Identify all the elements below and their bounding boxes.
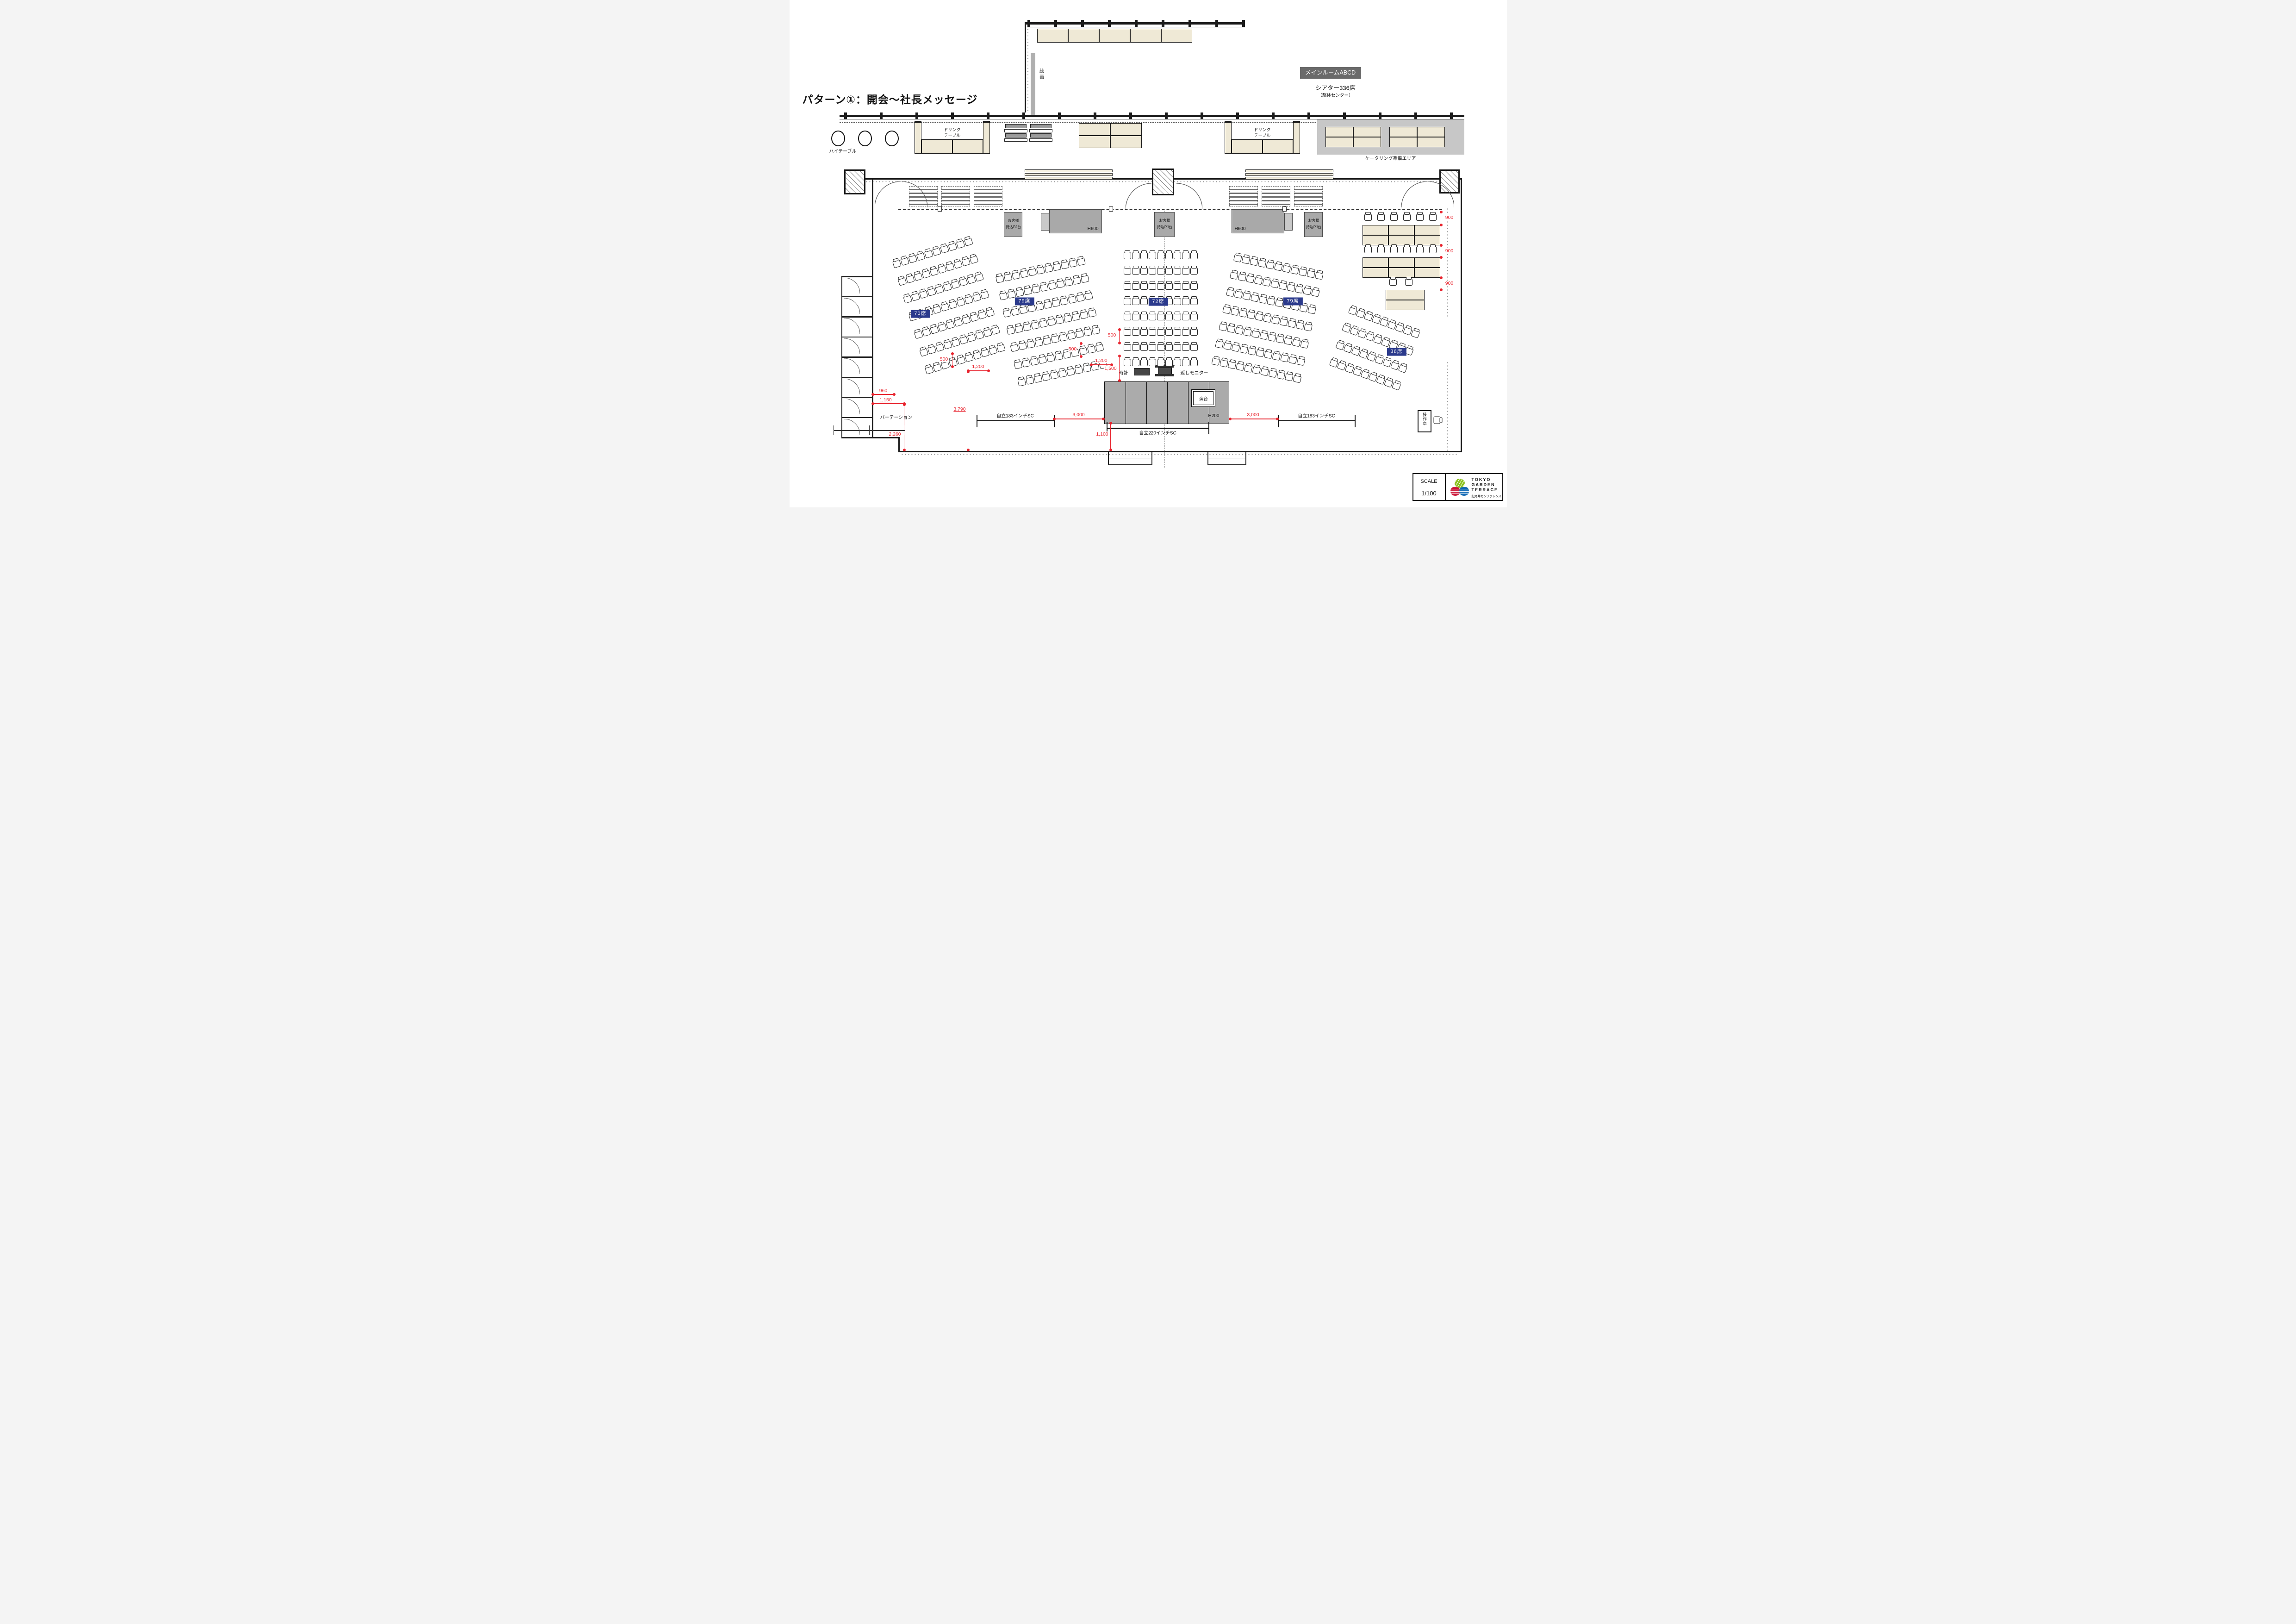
chair xyxy=(935,343,944,352)
rail-clamp-icon xyxy=(1054,20,1057,27)
chair xyxy=(1074,366,1083,374)
chair xyxy=(1416,214,1424,221)
chair xyxy=(956,240,965,249)
stage-divider xyxy=(1146,382,1147,424)
chair xyxy=(1003,273,1012,281)
chair xyxy=(1246,311,1255,319)
chair xyxy=(1140,329,1148,336)
dimension-line xyxy=(873,403,904,404)
logo-subtitle: 紀尾井カンファレンス xyxy=(1472,493,1502,498)
chair xyxy=(1251,330,1260,338)
chair xyxy=(1014,325,1023,333)
dimension-dot xyxy=(1440,211,1443,213)
dimension-line xyxy=(1054,418,1103,419)
chair xyxy=(925,366,934,375)
room-wall-left xyxy=(872,180,873,438)
chair xyxy=(1083,328,1092,337)
booth-door-arc xyxy=(844,278,860,294)
seat-row xyxy=(1124,359,1198,366)
logo-text: TERRACE xyxy=(1472,487,1499,492)
chair xyxy=(1015,288,1024,297)
chair xyxy=(1256,349,1264,357)
chair xyxy=(919,348,928,357)
dimension-label: 3,000 xyxy=(1072,412,1085,418)
av-side-table xyxy=(1041,213,1049,231)
screen-220-center xyxy=(1107,427,1209,429)
chair xyxy=(1028,268,1037,276)
logo-leaf-red xyxy=(1450,487,1460,496)
booth-divider xyxy=(841,377,872,378)
chair xyxy=(1236,362,1244,371)
partition-label: パーテーション xyxy=(880,413,913,420)
chair xyxy=(967,275,976,284)
catering-table xyxy=(1325,127,1353,137)
chair xyxy=(1149,313,1156,320)
chair xyxy=(943,283,952,292)
glass-pillar xyxy=(844,169,865,194)
dimension-dot xyxy=(871,393,874,396)
rail-clamp-icon xyxy=(1081,20,1084,27)
logo-leaf-blue xyxy=(1459,487,1469,496)
booth-divider xyxy=(841,397,872,398)
chair xyxy=(1307,306,1316,314)
chair xyxy=(1063,314,1072,323)
chair xyxy=(1068,295,1076,304)
dimension-line xyxy=(904,405,905,450)
booth-door-arc xyxy=(844,419,860,435)
side-table xyxy=(1388,225,1414,235)
chair xyxy=(1182,313,1189,320)
chair xyxy=(951,338,960,347)
side-table xyxy=(1363,235,1388,245)
rail-clamp-icon xyxy=(1215,20,1218,27)
chair xyxy=(914,272,923,281)
inner-wall-right xyxy=(1447,207,1448,319)
rail-clamp-icon xyxy=(1162,20,1164,27)
side-table xyxy=(1414,268,1440,278)
chair xyxy=(996,275,1004,283)
chair xyxy=(940,303,949,312)
dimension-label: 500 xyxy=(940,356,949,362)
chair xyxy=(1379,318,1388,327)
chair xyxy=(1165,283,1173,290)
chair xyxy=(1299,304,1308,312)
dimension-line xyxy=(1081,344,1082,356)
chair xyxy=(1035,302,1044,311)
room-wall-right xyxy=(1461,178,1462,452)
chair xyxy=(1403,246,1411,253)
h600-label: H600 xyxy=(1088,226,1099,231)
screen-left-label: 自立183インチSC xyxy=(996,412,1034,419)
chair xyxy=(1026,340,1035,349)
catering-table xyxy=(1417,127,1445,137)
chair xyxy=(959,336,968,344)
podium: 演台 xyxy=(1191,389,1215,407)
chair xyxy=(1165,313,1173,320)
chair xyxy=(948,242,957,251)
chair xyxy=(1258,295,1267,304)
chair xyxy=(1132,268,1139,275)
booth-divider xyxy=(841,417,872,418)
chair xyxy=(1190,298,1198,305)
chair xyxy=(1351,347,1360,356)
chair xyxy=(999,292,1008,300)
chair xyxy=(1377,214,1385,221)
dimension-label: 1,100 xyxy=(1095,431,1108,437)
track-hanger-icon xyxy=(938,206,942,212)
chair xyxy=(1140,359,1148,366)
chair xyxy=(1017,378,1026,387)
av-table-h600-left: H600 xyxy=(1049,209,1102,233)
dimension-dot xyxy=(1440,276,1443,279)
chair xyxy=(1010,344,1019,352)
storage-table xyxy=(1130,29,1161,43)
dimension-dot xyxy=(1229,418,1232,420)
chair xyxy=(1091,326,1100,335)
chair xyxy=(911,293,920,301)
drink-table-label: テーブル xyxy=(1254,132,1270,138)
booth-door-arc xyxy=(844,358,860,374)
chair xyxy=(1011,307,1020,316)
chair xyxy=(1006,326,1015,335)
chair xyxy=(1132,359,1139,366)
chair xyxy=(970,313,979,322)
chair xyxy=(1231,344,1240,352)
chair xyxy=(1311,289,1320,297)
chair xyxy=(1047,318,1056,326)
dimension-dot xyxy=(1080,342,1083,345)
chair xyxy=(1124,344,1131,351)
chair xyxy=(1377,246,1385,253)
clock-label: 時計 xyxy=(1119,369,1128,376)
chair xyxy=(1132,329,1139,336)
dimension-dot xyxy=(903,449,906,451)
chair xyxy=(1124,283,1131,290)
chair xyxy=(1132,283,1139,290)
catering-table xyxy=(1353,127,1381,137)
chair xyxy=(1276,371,1285,380)
rail-clamp-icon xyxy=(844,112,847,119)
chair xyxy=(1190,344,1198,351)
dimension-line xyxy=(1441,212,1442,225)
chair xyxy=(1287,283,1295,292)
chair xyxy=(933,363,942,372)
chair xyxy=(1077,257,1086,266)
chair xyxy=(905,275,915,283)
chair xyxy=(1337,362,1346,371)
screen-183-right-end xyxy=(1355,415,1356,427)
chair xyxy=(1384,379,1393,388)
chair xyxy=(1250,294,1259,302)
chair xyxy=(1314,271,1323,280)
stacked-tables xyxy=(1025,177,1113,180)
chair xyxy=(1076,294,1085,302)
rail-clamp-icon xyxy=(880,112,883,119)
dimension-line xyxy=(1091,364,1112,365)
storage-table xyxy=(1068,29,1099,43)
chair xyxy=(1072,276,1081,285)
chair xyxy=(1266,261,1275,269)
operator-console: 操作卓 xyxy=(1418,410,1431,432)
chair xyxy=(1032,285,1040,294)
chair xyxy=(914,330,923,339)
chair xyxy=(1303,287,1312,295)
dimension-label: 960 xyxy=(879,388,888,394)
rail-clamp-icon xyxy=(1201,112,1203,119)
chair xyxy=(1284,373,1293,381)
chair xyxy=(1246,275,1255,283)
chair xyxy=(1254,276,1263,285)
seat-count-badge: 36席 xyxy=(1387,348,1406,356)
catering-table xyxy=(1389,127,1417,137)
chair xyxy=(1350,327,1359,336)
chair xyxy=(1275,299,1283,307)
chair xyxy=(945,262,954,271)
side-table xyxy=(1363,225,1388,235)
chair xyxy=(930,325,939,334)
screen-center-label: 自立220インチSC xyxy=(1139,429,1176,436)
chair xyxy=(903,295,912,304)
drink-table-label: テーブル xyxy=(944,132,960,138)
side-table xyxy=(1386,300,1425,310)
chair xyxy=(969,255,978,264)
chair xyxy=(1304,323,1313,331)
chair xyxy=(1365,332,1374,342)
chair xyxy=(937,265,946,274)
seat-row xyxy=(1124,329,1198,336)
chair xyxy=(1182,298,1189,305)
stage-divider xyxy=(1126,382,1126,424)
chair xyxy=(1364,246,1372,253)
chair xyxy=(1272,352,1281,361)
chair xyxy=(927,287,936,296)
chair xyxy=(1033,375,1042,383)
chair xyxy=(1367,353,1376,362)
chair xyxy=(1182,268,1189,275)
chair xyxy=(1002,309,1011,318)
chair xyxy=(1329,359,1338,368)
door-swing-arc xyxy=(1401,181,1427,207)
scale-box: SCALE 1/100 TOKYO GARDEN TERRACE 紀尾井カンファ… xyxy=(1412,473,1503,501)
chair xyxy=(1274,263,1282,271)
chair xyxy=(1031,321,1039,330)
door-swing-arc xyxy=(1428,181,1454,207)
pj-stand-right: お客様 持込PJ台 xyxy=(1304,212,1323,237)
chair xyxy=(1044,264,1053,273)
chair xyxy=(1298,268,1307,276)
pj-stand-left: お客様 持込PJ台 xyxy=(1004,212,1022,237)
booth-door-arc xyxy=(844,318,860,334)
chair xyxy=(961,257,971,266)
chair xyxy=(1149,359,1156,366)
chair xyxy=(1190,283,1198,290)
high-table xyxy=(831,131,845,146)
chair xyxy=(1124,313,1131,320)
chair xyxy=(1211,357,1220,366)
chair xyxy=(1075,330,1084,338)
chair xyxy=(1360,370,1369,379)
dimension-dot xyxy=(893,393,896,396)
chair xyxy=(1132,252,1139,259)
chair xyxy=(1140,268,1148,275)
booth-divider xyxy=(841,296,872,298)
chair xyxy=(1174,298,1181,305)
rail-clamp-icon xyxy=(1027,20,1030,27)
chair xyxy=(1392,381,1401,391)
chair xyxy=(1157,329,1164,336)
booth-divider xyxy=(841,337,872,338)
chair xyxy=(1174,313,1181,320)
chair xyxy=(1215,340,1224,349)
chair xyxy=(1149,329,1156,336)
chair xyxy=(1056,280,1065,288)
chair xyxy=(957,356,966,365)
rail-clamp-icon xyxy=(1450,112,1453,119)
chair xyxy=(1165,268,1173,275)
catering-label: ケータリング準備エリア xyxy=(1365,155,1416,162)
chair xyxy=(1411,329,1420,338)
chair xyxy=(1238,309,1247,318)
dimension-dot xyxy=(1109,449,1112,451)
chair xyxy=(1387,321,1396,330)
screen-183-right xyxy=(1278,420,1355,422)
screen-183-left xyxy=(977,420,1054,422)
chair xyxy=(1069,259,1077,268)
chair xyxy=(1262,278,1271,287)
stacked-tables xyxy=(1245,169,1333,172)
seat-row xyxy=(1124,268,1198,275)
chair xyxy=(1174,283,1181,290)
foyer-table xyxy=(1110,136,1142,148)
screen-183-left-end xyxy=(1054,415,1055,427)
chair xyxy=(946,320,955,329)
rail-clamp-icon xyxy=(1022,112,1025,119)
dimension-label: 3,790 xyxy=(953,406,966,412)
chair xyxy=(940,361,950,369)
side-table xyxy=(1388,235,1414,245)
dimension-label: 500 xyxy=(1068,346,1077,352)
chair xyxy=(1255,312,1263,321)
chair xyxy=(1124,359,1131,366)
chair xyxy=(1230,307,1239,316)
chair xyxy=(1140,313,1148,320)
door-swing-arc xyxy=(875,181,901,207)
chair xyxy=(1376,376,1385,385)
chair xyxy=(1229,271,1238,280)
high-table xyxy=(885,131,899,146)
logo-mark xyxy=(1450,479,1469,497)
chair xyxy=(1149,283,1156,290)
chair xyxy=(1219,323,1227,331)
chair xyxy=(1288,319,1296,328)
chair xyxy=(1019,306,1028,314)
chair xyxy=(980,291,989,300)
chair xyxy=(1233,254,1242,262)
chair xyxy=(1071,312,1080,321)
stacked-chairs xyxy=(941,186,970,206)
chair xyxy=(1023,287,1032,295)
chair xyxy=(927,345,936,354)
chair xyxy=(1036,266,1045,275)
pj-stand-label: お客様 xyxy=(1305,218,1323,223)
pj-stand-label: 持込PJ台 xyxy=(1002,225,1025,230)
rail-clamp-icon xyxy=(1242,20,1245,27)
screen-183-right-end xyxy=(1278,415,1279,427)
chair xyxy=(1390,361,1399,370)
chair xyxy=(1238,273,1246,281)
chair xyxy=(897,277,907,286)
chair xyxy=(972,293,981,302)
chair xyxy=(900,257,909,266)
dimension-dot xyxy=(987,369,990,372)
top-wall-line xyxy=(1025,27,1245,27)
chair xyxy=(1244,364,1252,373)
chair xyxy=(1064,278,1073,287)
logo-text: TOKYO xyxy=(1472,477,1491,482)
chair xyxy=(1014,361,1022,369)
door-swing-arc xyxy=(902,181,927,207)
scale-value: 1/100 xyxy=(1413,490,1445,497)
chair xyxy=(951,280,960,289)
chair xyxy=(1343,344,1352,353)
chair xyxy=(1268,369,1277,378)
dimension-dot xyxy=(1118,379,1121,382)
chair xyxy=(1293,375,1301,383)
side-table xyxy=(1414,257,1440,268)
chair xyxy=(1403,326,1412,336)
dimension-label: 900 xyxy=(1445,248,1454,254)
chair xyxy=(1405,279,1412,286)
art-strip xyxy=(1031,53,1035,116)
chair xyxy=(935,285,944,294)
dimension-dot xyxy=(967,449,970,451)
chair xyxy=(1039,319,1048,328)
art-wall-dots xyxy=(1027,28,1028,111)
chair xyxy=(1263,314,1272,323)
seat-count-badge: 70席 xyxy=(910,310,930,318)
chair xyxy=(1390,214,1398,221)
chair xyxy=(1088,309,1096,318)
chair xyxy=(943,341,952,350)
seat-row xyxy=(1124,283,1198,290)
chair xyxy=(1300,340,1309,349)
rail-clamp-icon xyxy=(1094,112,1096,119)
rail-clamp-icon xyxy=(915,112,918,119)
booth-door-arc xyxy=(844,298,860,314)
dimension-label: 1,150 xyxy=(879,397,892,403)
chair xyxy=(892,259,902,268)
seat-count-badge: 72席 xyxy=(1148,298,1168,306)
chair xyxy=(1182,329,1189,336)
chair xyxy=(1259,331,1268,340)
chair xyxy=(1157,359,1164,366)
rail-clamp-icon xyxy=(1414,112,1417,119)
pj-stand-label: 持込PJ台 xyxy=(1303,225,1325,230)
chair xyxy=(1157,268,1164,275)
chair xyxy=(1234,290,1243,299)
chair xyxy=(1052,299,1060,307)
catering-table xyxy=(1389,137,1417,147)
stage-height-label: H200 xyxy=(1208,413,1220,418)
chair xyxy=(1182,283,1189,290)
chair xyxy=(1157,252,1164,259)
chair xyxy=(1288,356,1297,364)
chair xyxy=(1270,280,1279,288)
dimension-dot xyxy=(871,402,874,405)
screen-183-left-end xyxy=(977,415,977,427)
chair xyxy=(1371,315,1381,324)
chair xyxy=(1174,359,1181,366)
